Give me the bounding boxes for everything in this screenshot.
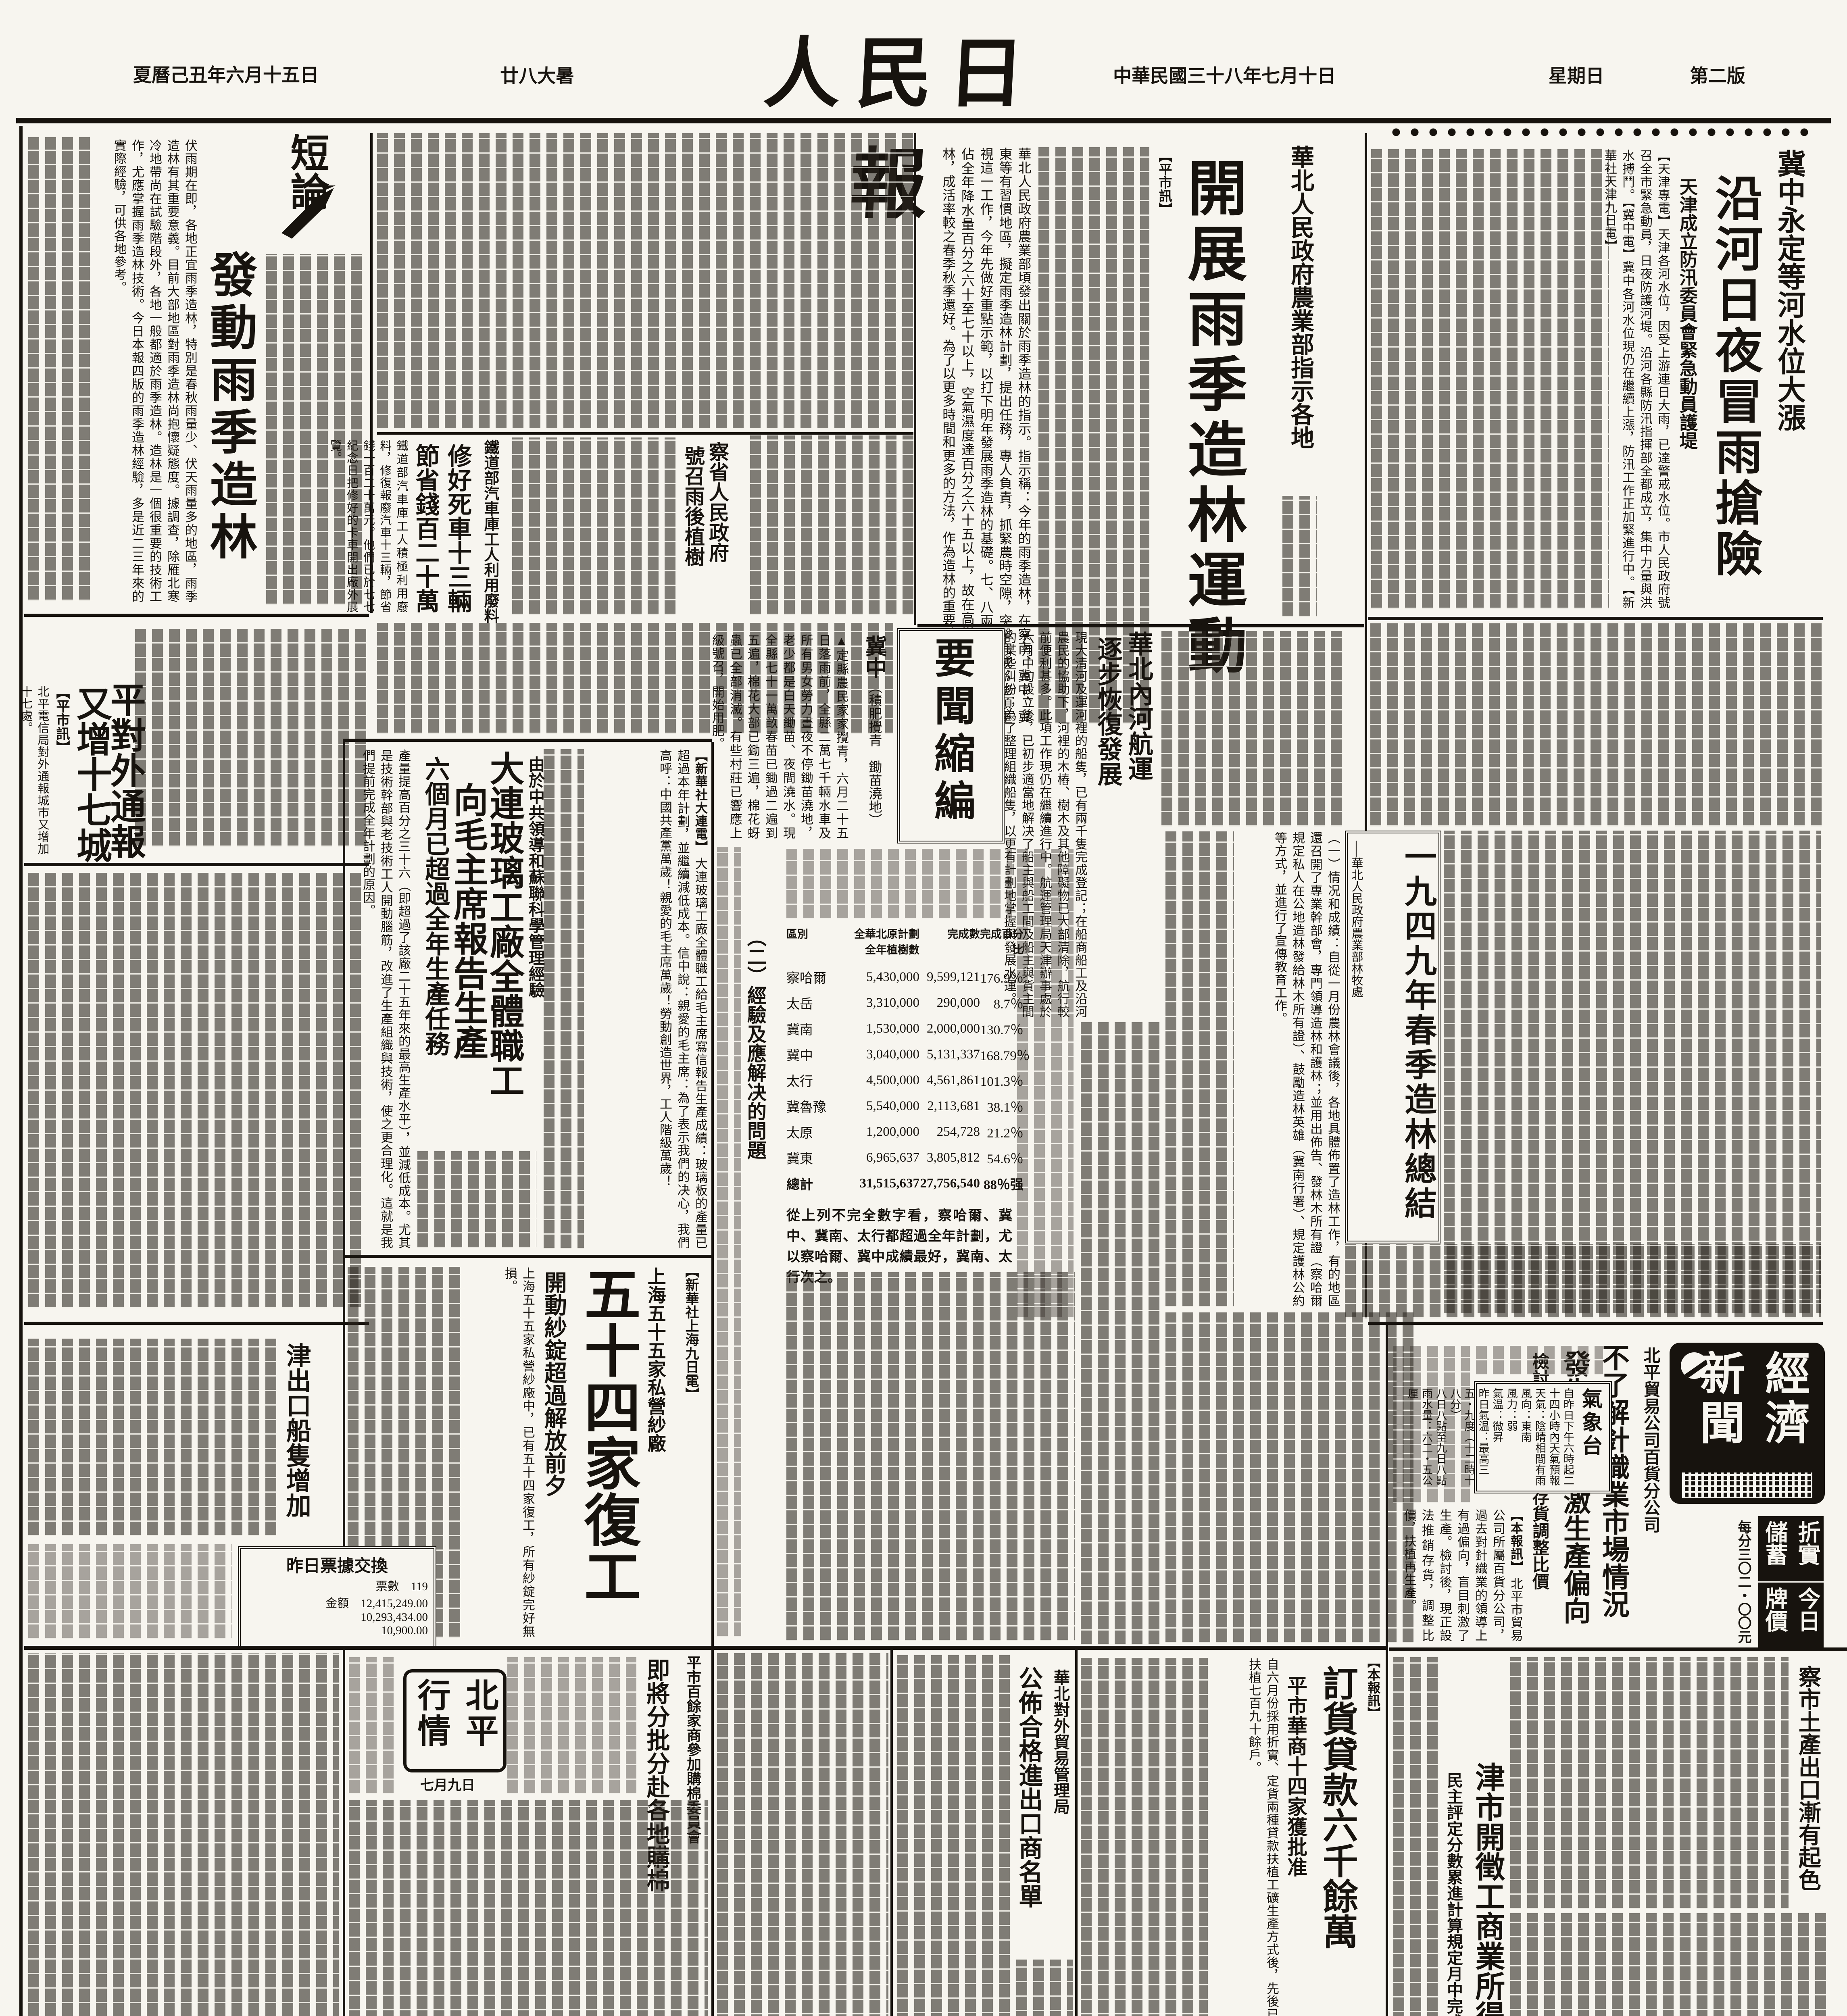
dead-trucks-lead: 鐵道部汽車庫工人積極利用廢料，修復報廢汽車十三輛，節省錢一百二十萬元。他們已於七…: [377, 439, 409, 613]
editorial-icon: 短論: [278, 133, 371, 246]
dalian-lead: 【新華社大連電】 大連玻璃工廠全體職工給毛主席寫信報告生產成績：玻璃板的產量已超…: [588, 749, 709, 1249]
clearing-line: 10,900.00: [246, 1624, 428, 1637]
text-columns: [1476, 1346, 1603, 1375]
text-columns: [28, 137, 93, 601]
cell: 1,200,000: [847, 1125, 919, 1139]
cell: 2,113,681: [919, 1099, 980, 1114]
beiping-quotes-label: 北平行情: [407, 1678, 503, 1763]
cell: 5,430,000: [847, 970, 919, 985]
cell: 31,515,637: [847, 1176, 919, 1191]
beiping-quotes-emblem: 北平行情: [403, 1669, 507, 1772]
savings-chip-1-label: 折實儲蓄: [1758, 1520, 1824, 1577]
text-columns: [135, 629, 367, 847]
section-rule: [1368, 617, 1823, 620]
dalian-subhead: 六個月已超過全年生產任務: [417, 756, 453, 1103]
text-columns: [1161, 631, 1343, 827]
diamond-divider: [1391, 127, 1819, 137]
column-rule: [343, 742, 345, 2016]
section-rule: [377, 432, 913, 435]
news-digest-title: 要聞縮編: [921, 637, 981, 834]
table-row: 冀魯豫5,540,0002,113,68138.1％: [786, 1093, 1028, 1119]
cell: 290,000: [919, 996, 980, 1010]
flood-headline-main: 沿河日夜冒雨搶險: [1709, 173, 1759, 593]
main-story-byline: 【平市訊】: [1154, 149, 1174, 270]
cell: 冀中: [786, 1045, 847, 1064]
cell: 21.2％: [980, 1122, 1024, 1141]
cell: 3,310,000: [847, 996, 919, 1010]
cell: 38.1％: [980, 1096, 1024, 1116]
text-columns: [786, 1272, 1075, 1641]
column-rule: [711, 742, 714, 2016]
table-row: 冀中3,040,0005,131,337168.79％: [786, 1041, 1028, 1067]
cell: 3,040,000: [847, 1047, 919, 1062]
flood-headline-top: 冀中永定等河水位大漲: [1774, 149, 1803, 468]
text-columns: [1371, 149, 1609, 609]
weather-line: 風向：東南: [1518, 1388, 1532, 1487]
cell: 5,131,337: [919, 1047, 980, 1062]
savings-value: 每分三〇二・〇〇元: [1733, 1520, 1753, 1645]
cell: 6,965,637: [847, 1150, 919, 1165]
table-row: 冀南1,530,0002,000,000130.7％: [786, 1016, 1028, 1041]
cell: 1,530,000: [847, 1021, 919, 1036]
hatch-ornament: [1682, 1472, 1812, 1498]
loans-headline: 訂貨貸款六千餘萬: [1318, 1665, 1355, 1988]
cell: 5,540,000: [847, 1099, 919, 1114]
weather-line: 昨日氣温：最高三五・九度（十二時十八分）: [1447, 1388, 1490, 1487]
text-columns: [717, 1653, 888, 2016]
weather-line: 氣温：微昇: [1490, 1388, 1504, 1487]
text-columns: [750, 435, 913, 615]
text-columns: [717, 847, 741, 1637]
lunar-date: 夏曆己丑年六月十五日: [133, 60, 319, 87]
column-rule: [1386, 1325, 1388, 2016]
news-digest-region: 冀中 （積肥攪青 鋤苗澆地）: [858, 635, 890, 837]
forest-report-attribution: ──華北人民政府農業部林牧處: [1348, 841, 1365, 1220]
shipping-headline-1: 華北內河航運: [1124, 631, 1151, 804]
telegraph-headline-2: 又增十七城: [72, 685, 109, 879]
loans-byline: 【本報訊】: [1364, 1655, 1382, 1752]
cell: 254,728: [919, 1125, 980, 1139]
chaha-note-headline-2: 號召雨後植樹: [682, 446, 704, 583]
table-row: 太原1,200,000254,72821.2％: [786, 1119, 1028, 1145]
dalian-byline: 【新華社大連電】: [693, 749, 707, 854]
econ-news-box: 經濟新聞: [1670, 1343, 1825, 1504]
text-columns: [28, 1339, 276, 1536]
cell: 4,500,000: [847, 1073, 919, 1088]
text-columns: [1370, 623, 1822, 827]
telegraph-headline-1: 平對外通報: [106, 681, 143, 875]
forest-report-section2-label: （二）經驗及應解决的問題: [744, 927, 765, 1242]
column-rule: [890, 1649, 893, 2016]
clearing-line: 10,293,434.00: [246, 1611, 428, 1624]
ships-headline: 津出口船隻增加: [282, 1343, 309, 1540]
cell: 冀東: [786, 1148, 847, 1167]
mills-byline: 【新華社上海九日電】: [681, 1264, 700, 1433]
text-columns: [1510, 1913, 1829, 2016]
text-columns: [544, 749, 584, 1249]
tj-tax-headline: 津市開徵工商業所得稅: [1471, 1762, 1503, 2016]
text-columns: [28, 873, 367, 1308]
traders-kicker: 華北對外貿易管理局: [1049, 1669, 1072, 1831]
cell: 101.3％: [980, 1070, 1024, 1090]
section-rule: [917, 624, 1364, 627]
brush-icon: [278, 185, 339, 246]
cell: 4,561,861: [919, 1073, 980, 1088]
cell: 冀魯豫: [786, 1096, 847, 1116]
cell: 27,756,540: [919, 1176, 980, 1191]
news-digest-item: ▲定縣農民家家攪青，六月二十五日落雨前，全縣二萬七千輛水車及所有男女勞力晝夜不停…: [717, 634, 850, 839]
weather-box: 氣象台 自昨日下午六時起二十四小時內天氣預報 天氣：陰晴相間有雨 風向：東南 風…: [1474, 1381, 1612, 1493]
savings-chip-1: 折實儲蓄: [1758, 1516, 1824, 1581]
th-plan: 全華北原計劃全年植樹數: [847, 925, 919, 957]
text-columns: [28, 1544, 232, 1639]
news-digest-box: 要聞縮編: [897, 628, 1005, 843]
weekday: 星期日: [1549, 61, 1604, 88]
text-columns: [507, 1657, 636, 1794]
mills-headline: 五十四家復工: [577, 1265, 637, 1640]
weather-line: 風力：弱: [1504, 1388, 1518, 1487]
cell: 2,000,000: [919, 1021, 980, 1036]
traders-headline: 公佈合格進出口商名單: [1015, 1666, 1041, 1940]
section-rule: [1368, 1322, 1823, 1325]
th-pct: 完成百分比: [980, 925, 1024, 957]
weather-title: 氣象台: [1575, 1388, 1605, 1487]
mills-subhead: 開動紗錠超過解放前夕: [541, 1271, 565, 1521]
knitting-lead-text: 北平市貿易公司所屬百貨分公司，過去對針織業的領導上有過偏向，盲目刺激了生產。檢討…: [1402, 1509, 1523, 1642]
dalian-note: 產量提高百分之三十六（即超過了該廠二十五年來的最高生產水平），並減低成本。尤其是…: [348, 749, 412, 1249]
section-rule: [343, 1255, 712, 1258]
dalian-headline-1: 大連玻璃工廠全體職工: [485, 751, 522, 1138]
column-rule: [914, 133, 916, 625]
edition-number: 第二版: [1690, 61, 1745, 88]
dead-trucks-kicker: 鐵道部汽車庫工人利用廢料: [479, 439, 501, 645]
cell: 168.79％: [980, 1045, 1024, 1064]
cell: 8.7％: [980, 993, 1024, 1012]
dead-trucks-headline-2: 節省錢百二十萬: [412, 444, 438, 625]
text-columns: [1510, 1657, 1789, 1909]
digest-region-sub: （積肥攪青 鋤苗澆地）: [867, 680, 881, 827]
text-columns: [1016, 1960, 1073, 2016]
cell: 88％强: [980, 1174, 1024, 1193]
chaha-note-headline-1: 察省人民政府: [707, 442, 728, 579]
knitting-lead: 【本報訊】 北平市貿易公司所屬百貨分公司，過去對針織業的領導上有過偏向，盲目刺激…: [1393, 1509, 1524, 1642]
section-rule: [24, 863, 369, 866]
column-rule: [1075, 1649, 1078, 2016]
text-columns: [1165, 1312, 1415, 1643]
band-rule: [24, 1646, 1387, 1650]
tj-tax-subhead: 民主評定分數累進計算規定月中完成: [1442, 1772, 1465, 2016]
cell: 9,599,121: [919, 970, 980, 985]
editorial-headline: 發動雨季造林: [204, 250, 254, 573]
savings-chip-2-label: 今日牌價: [1758, 1587, 1824, 1643]
forest-report-title: 一九四九年春季造林總結: [1400, 840, 1434, 1227]
clearing-box: 昨日票據交換 票數 119 金額 12,415,249.00 10,293,43…: [238, 1546, 436, 1649]
cell: 太原: [786, 1122, 847, 1141]
table-row: 冀東6,965,6373,805,81254.6％: [786, 1145, 1028, 1170]
cell: 130.7％: [980, 1019, 1024, 1038]
mills-lead: 上海五十五家私營紗廠中，已有五十四家復工，所有紗錠完好無損。: [470, 1267, 536, 1638]
text-columns: [897, 1655, 1010, 2016]
text-columns: [1444, 831, 1821, 1314]
beiping-quotes-date: 七月九日: [420, 1774, 475, 1794]
digest-region-label: 冀中: [862, 635, 886, 679]
price-table-columns: [349, 1800, 708, 2016]
cell: 冀南: [786, 1019, 847, 1038]
clearing-title: 昨日票據交換: [246, 1552, 428, 1577]
forest-report-box: 一九四九年春季造林總結 ──華北人民政府農業部林牧處: [1345, 831, 1441, 1243]
section-rule: [24, 1322, 369, 1325]
table-row: 察哈爾5,430,0009,599,121176.9％: [786, 964, 1028, 990]
solar-term: 廿八大暑: [500, 61, 574, 88]
dead-trucks-headline-1: 修好死車十三輛: [444, 444, 470, 625]
cell: 太行: [786, 1070, 847, 1090]
section-rule: [1389, 1647, 1847, 1651]
weather-line: 八日八點至九日八點雨水量：六二・五公厘: [1405, 1388, 1447, 1487]
dalian-kicker: 由於中共領導和蘇聯科學管理經驗: [523, 756, 547, 1030]
loans-lead: 自六月份採用折實、定貨兩種貸款扶植工礦生產方式後，先後已扶植七百九十餘戶。: [1212, 1658, 1280, 2016]
text-columns: [512, 437, 678, 615]
newspaper-page: 夏曆己丑年六月十五日 廿八大暑 人民日報 中華民國三十八年七月十日 星期日 第二…: [0, 0, 1847, 2016]
cell: 3,805,812: [919, 1150, 980, 1165]
knitting-byline: 【本報訊】: [1509, 1509, 1523, 1574]
header-rule: [16, 118, 1831, 123]
text-columns: [417, 1151, 536, 1248]
chaha-export-headline: 察市土產出口漸有起色: [1795, 1665, 1819, 1907]
cell: 54.6％: [980, 1148, 1024, 1167]
weather-line: 天氣：陰晴相間有雨: [1532, 1388, 1547, 1487]
forest-report-section1: （一）情况和成績：自從一月份農林會議後，各地具體佈置了造林工作，有的地區還召開了…: [1239, 831, 1342, 1307]
main-story-headline: 開展雨季造林運動: [1180, 157, 1242, 694]
loans-subhead: 平市華商十四家獲批准: [1285, 1675, 1306, 1909]
cell: 太岳: [786, 993, 847, 1012]
text-columns: [1165, 831, 1234, 1307]
telegraph-lead: 北平電信局對外通報城市又增加十七處。: [28, 685, 50, 855]
flood-subhead: 天津成立防汛委員會緊急動員護堤: [1677, 177, 1696, 476]
forest-table-header: 區別 全華北原計劃全年植樹數 完成數 完成百分比: [786, 925, 1028, 964]
text-columns: [1282, 496, 1317, 617]
text-columns: [786, 849, 1012, 919]
flood-lead: 【天津專電】天津各河水位，因受上游連日大雨，已達警戒水位。市人民政府號召全市緊急…: [1613, 149, 1672, 609]
table-row: 太行4,500,0004,561,861101.3％: [786, 1067, 1028, 1093]
clearing-line: 票數 119: [246, 1577, 428, 1594]
main-story-kicker: 華北人民政府農業部指示各地: [1283, 145, 1317, 480]
roc-date: 中華民國三十八年七月十日: [1113, 61, 1336, 88]
mills-kicker: 上海五十五家私營紗廠: [645, 1267, 665, 1477]
section-rule: [24, 614, 369, 617]
th-region: 區別: [786, 925, 847, 941]
text-columns: [349, 1657, 397, 1794]
editorial-lead: 伏雨期在即，各地正宜雨季造林，特別是春秋雨量少、伏天雨量多的地區，雨季造林有其重…: [96, 139, 199, 603]
telegraph-byline: 【平市訊】: [52, 685, 71, 847]
text-columns: [1081, 1658, 1208, 2016]
weather-intro: 自昨日下午六時起二十四小時內天氣預報: [1547, 1388, 1575, 1487]
knitting-kicker: 北平貿易公司百貨分公司: [1638, 1347, 1663, 1556]
cell: 察哈爾: [786, 967, 847, 987]
page-left-rule: [19, 126, 23, 2016]
text-columns: [28, 1653, 339, 2016]
clearing-line: 金額 12,415,249.00: [246, 1594, 428, 1611]
text-columns: [1345, 1244, 1821, 1318]
th-done: 完成數: [919, 925, 980, 941]
text-columns: [377, 133, 913, 429]
table-row: 太岳3,310,000290,0008.7％: [786, 990, 1028, 1016]
dalian-headline-2: 向毛主席報告生產: [449, 782, 486, 1113]
cell: 總計: [786, 1174, 847, 1193]
table-total-row: 總計31,515,63727,756,54088％强: [786, 1170, 1028, 1196]
savings-chip-2: 今日牌價: [1758, 1583, 1824, 1648]
text-columns: [1081, 1022, 1161, 1645]
cell: 176.9％: [980, 967, 1024, 987]
moon-emblem-icon: [1681, 1352, 1707, 1379]
shipping-headline-2: 逐步恢復發展: [1094, 636, 1120, 810]
forest-table: 區別 全華北原計劃全年植樹數 完成數 完成百分比 察哈爾5,430,0009,5…: [786, 925, 1028, 1196]
text-columns: [1393, 1657, 1438, 2016]
section-rule: [343, 739, 712, 742]
